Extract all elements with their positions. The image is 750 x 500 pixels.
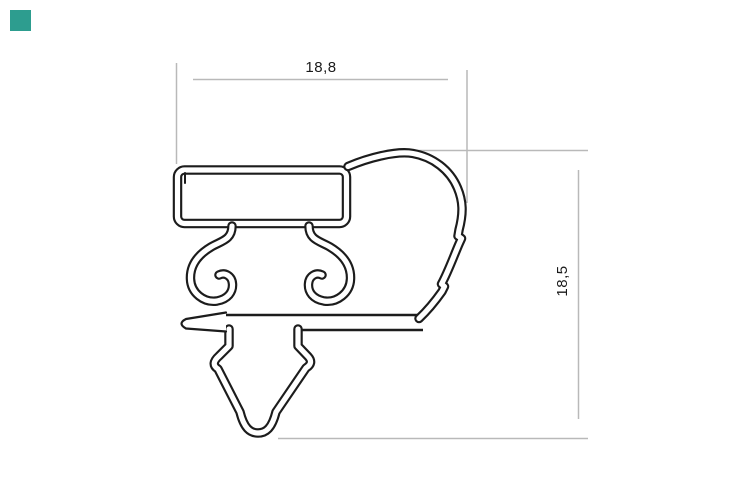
gasket-magnet-pocket-outline	[178, 170, 347, 224]
dimension-label-height: 18,5	[553, 259, 573, 303]
bellows-left-curl-cavity	[190, 226, 232, 301]
bellows-right-curl-cavity	[308, 226, 350, 301]
gasket-profile	[178, 153, 463, 433]
drawing-canvas: 18,8 18,5	[0, 0, 750, 500]
dimension-label-width: 18,8	[291, 58, 351, 78]
left-fin	[182, 313, 227, 332]
bar-dart-opening	[234, 328, 295, 332]
gasket-profile-drawing	[0, 0, 750, 500]
gasket-magnet-pocket-cavity	[178, 170, 347, 224]
dimension-lines	[177, 63, 589, 439]
sealing-balloon-outline	[348, 153, 462, 319]
